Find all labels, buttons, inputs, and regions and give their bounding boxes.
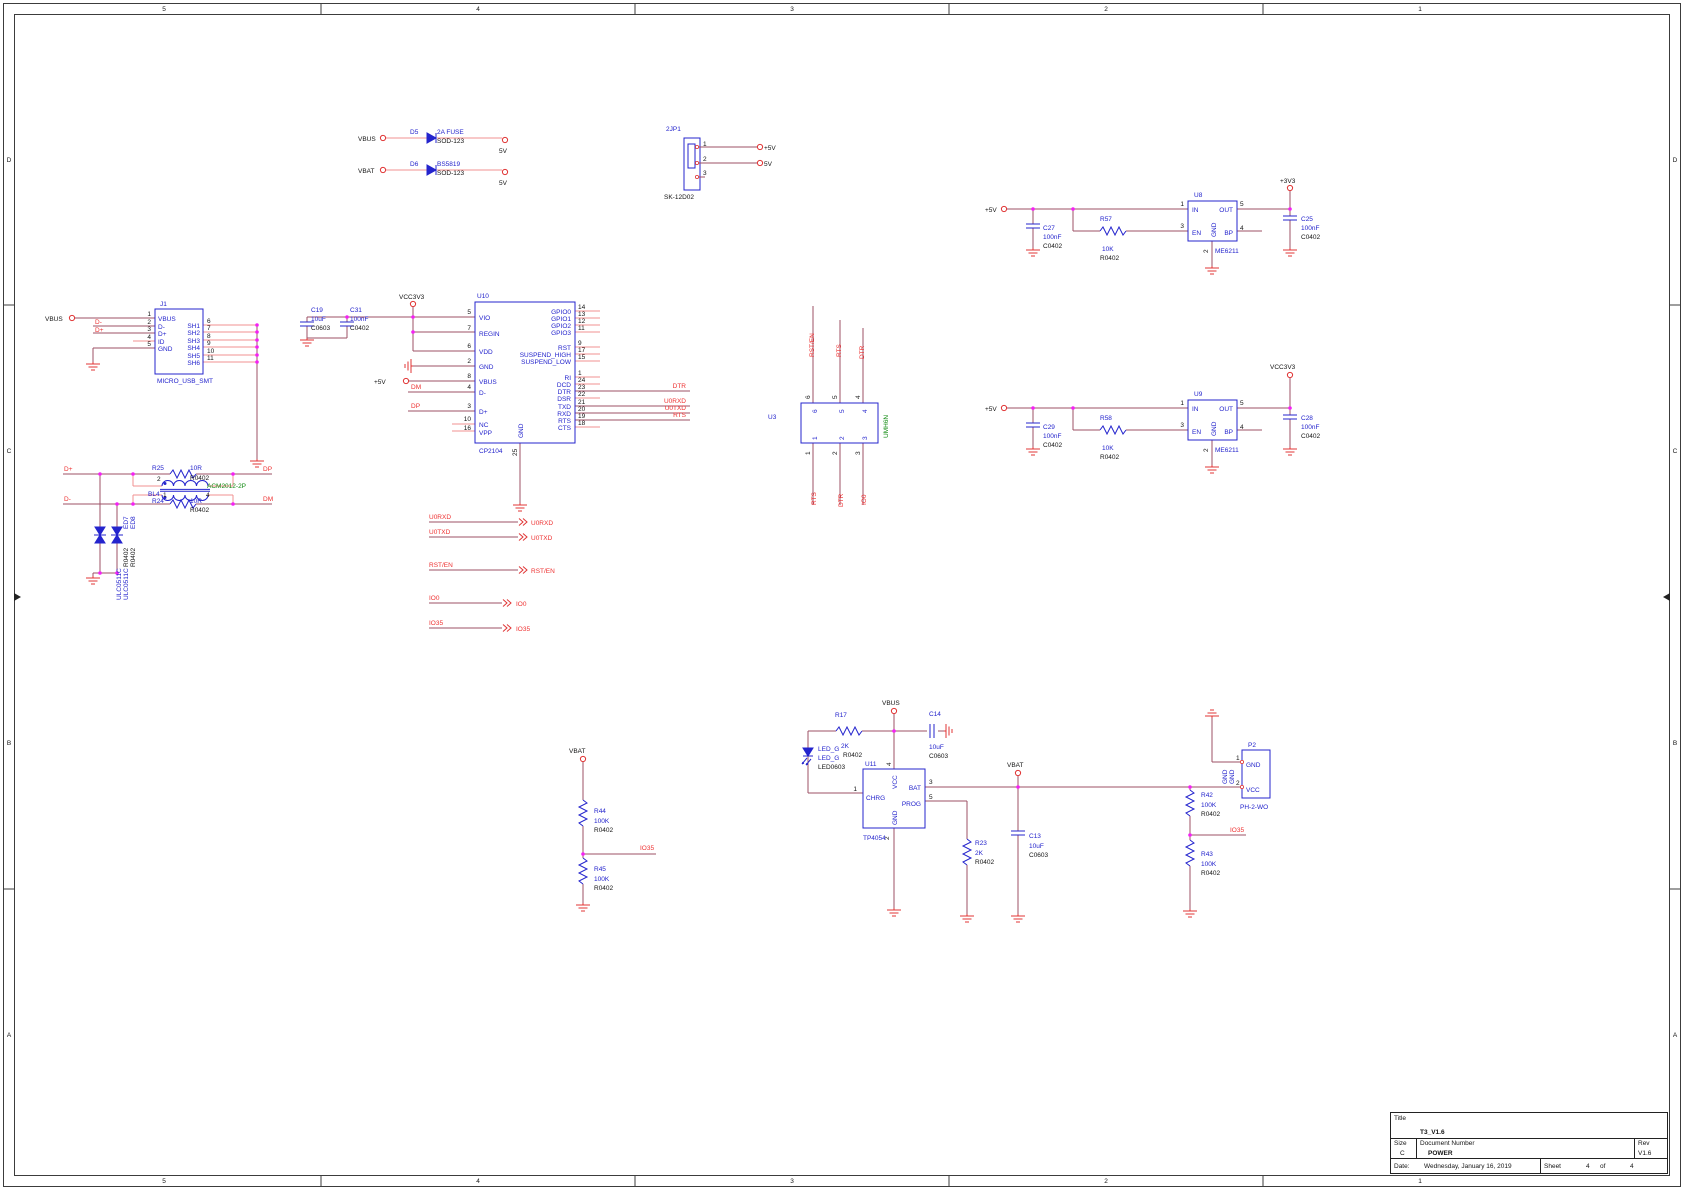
usb_filter-part-label: R25 [152, 465, 164, 472]
usb_filter-part-label: 10R [190, 465, 202, 472]
usb_bridge_u10-part-label: RTS [558, 418, 572, 425]
regulator_u8-part-label: GND [1211, 222, 1218, 237]
usb_bridge_u10-text-label: 22 [578, 391, 586, 398]
frame-text-label: A [1673, 1032, 1678, 1039]
charger-part-label: LED_G [818, 746, 839, 753]
input_protection-text-label: VBUS [358, 136, 376, 143]
usb_bridge_u10-part-label: D- [479, 390, 486, 397]
strap_u3-text-label: 3 [855, 451, 862, 455]
usb_connector-net-label: D+ [95, 327, 104, 334]
regulator_u9-part-label: ME6211 [1215, 447, 1239, 454]
charger-text-label: R0402 [1201, 811, 1221, 818]
signal_stubs-net-label: U0TXD [531, 535, 553, 542]
left-center-arrow-icon [14, 593, 21, 601]
regulator_u9-part-label: U9 [1194, 391, 1203, 398]
charger-text-label: LED0603 [818, 764, 845, 771]
charger-text-label: 3 [929, 779, 933, 786]
usb_bridge_u10-text-label: 12 [578, 318, 586, 325]
charger-part-label: GND [1246, 762, 1261, 769]
regulator_u8-part-label: C25 [1301, 216, 1313, 223]
charger-text-label: R0402 [975, 859, 995, 866]
usb_connector-part-label: SH6 [187, 360, 200, 367]
usb_bridge_u10-part-label: RST [558, 345, 571, 352]
regulator_u8-part-label: C27 [1043, 225, 1055, 232]
usb_bridge_u10-text-label: 23 [578, 384, 586, 391]
usb_bridge_u10-text-label: 5 [467, 309, 471, 316]
usb_bridge_u10-part-label: D+ [479, 409, 488, 416]
regulator_u8-text-label: C0402 [1043, 243, 1063, 250]
input_protection-text-label: SOD-123 [437, 138, 464, 145]
usb_connector-part-label: J1 [160, 301, 167, 308]
regulator_u8-part-label: OUT [1219, 207, 1233, 214]
strap_u3-text-label: 2 [832, 451, 839, 455]
regulator_u9-text-label: C0402 [1043, 442, 1063, 449]
usb_bridge_u10-part-label: REGIN [479, 331, 500, 338]
sheet-label: Sheet [1544, 1163, 1561, 1170]
usb_filter-part-label: ED8 [130, 516, 137, 529]
frame-text-label: 3 [790, 6, 794, 13]
charger-part-label: TP4054 [863, 835, 886, 842]
jumper-text-label: 3 [703, 170, 707, 177]
signal_stubs-net-label: U0RXD [429, 514, 451, 521]
usb_bridge_u10-net-label: DTR [673, 383, 687, 390]
strap_u3-net-label: IO0 [861, 494, 868, 505]
input_protection-part-label: D5 [410, 129, 419, 136]
signal_stubs-net-label: RST/EN [429, 562, 453, 569]
strap_u3-net-label: RTS [811, 491, 818, 505]
frame-text-label: 5 [162, 6, 166, 13]
regulator_u9-part-label: C29 [1043, 424, 1055, 431]
sheet-number: 4 [1586, 1163, 1590, 1170]
strap_u3-text-label: 6 [805, 395, 812, 399]
usb_connector-part-label: SH5 [187, 353, 200, 360]
jumper-text-label: 5V [764, 161, 773, 168]
charger-part-label: R23 [975, 840, 987, 847]
regulator_u9-text-label: 1 [1180, 400, 1184, 407]
usb_bridge_u10-part-label: VBUS [479, 379, 497, 386]
regulator_u9-part-label: 10K [1102, 445, 1114, 452]
strap_u3-text-label: 1 [805, 451, 812, 455]
strap_u3-net-label: DTR [859, 345, 866, 359]
usb_connector-text-label: 6 [207, 318, 211, 325]
battery_divider-net-label: IO35 [640, 845, 654, 852]
charger-text-label: C0603 [929, 753, 949, 760]
usb_bridge_u10-text-label: 18 [578, 420, 586, 427]
regulator_u9-text-label: R0402 [1100, 454, 1120, 461]
usb_connector-part-label: SH4 [187, 345, 200, 352]
regulator_u9-part-label: C28 [1301, 415, 1313, 422]
input_protection-part-label: 2A FUSE [437, 129, 464, 136]
component-jumper-2jp1 [684, 138, 763, 190]
regulator_u9-text-label: VCC3V3 [1270, 364, 1296, 371]
strap_u3-text-label: 5 [832, 395, 839, 399]
input_protection-part-label: D6 [410, 161, 419, 168]
battery_divider-part-label: 100K [594, 818, 610, 825]
regulator_u9-part-label: R58 [1100, 415, 1112, 422]
usb_connector-part-label: D+ [158, 331, 167, 338]
usb_bridge_u10-part-label: 100nF [350, 316, 368, 323]
frame-text-label: A [7, 1032, 12, 1039]
usb_connector-part-label: SH2 [187, 330, 200, 337]
charger-part-label: 10uF [1029, 843, 1044, 850]
frame-text-label: 2 [1104, 6, 1108, 13]
usb_bridge_u10-part-label: GPIO0 [551, 309, 571, 316]
frame-text-label: D [1673, 157, 1678, 164]
usb_bridge_u10-text-label: 20 [578, 406, 586, 413]
sheet-of-label: of [1600, 1163, 1606, 1170]
usb_connector-text-label: VBUS [45, 316, 63, 323]
regulator_u8-text-label: 5 [1240, 201, 1244, 208]
usb_bridge_u10-net-label: DM [411, 384, 421, 391]
regulator_u9-part-label: GND [1211, 421, 1218, 436]
usb_bridge_u10-part-label: VPP [479, 430, 492, 437]
charger-part-label: 100K [1201, 861, 1217, 868]
charger-text-label: 5 [929, 794, 933, 801]
strap_u3-part-label: 1 [812, 436, 819, 440]
charger-part-label: PROG [902, 801, 921, 808]
usb_bridge_u10-part-label: C19 [311, 307, 323, 314]
usb_bridge_u10-text-label: C0402 [350, 325, 370, 332]
charger-part-label: VCC [892, 775, 899, 789]
date-value: Wednesday, January 16, 2019 [1424, 1163, 1512, 1170]
regulator_u8-part-label: 100nF [1043, 234, 1061, 241]
strap_u3-part-value-label: UMH6N [883, 415, 890, 438]
usb_bridge_u10-text-label: 9 [578, 340, 582, 347]
regulator_u8-part-label: U8 [1194, 192, 1203, 199]
charger-part-label: C14 [929, 711, 941, 718]
usb_bridge_u10-net-label: RTS [673, 412, 687, 419]
title-label: Title [1394, 1115, 1406, 1122]
usb_bridge_u10-text-label: 21 [578, 399, 586, 406]
usb_bridge_u10-text-label: VCC3V3 [399, 294, 425, 301]
charger-text-label: R0402 [843, 752, 863, 759]
usb_bridge_u10-text-label: 16 [464, 425, 472, 432]
charger-part-label: R17 [835, 712, 847, 719]
frame-text-label: 3 [790, 1178, 794, 1185]
component-battery-divider [576, 756, 656, 911]
charger-part-label: GND [1222, 769, 1229, 784]
usb_connector-text-label: 8 [207, 333, 211, 340]
regulator_u9-part-label: EN [1192, 429, 1201, 436]
usb_connector-text-label: 1 [147, 311, 151, 318]
frame-text-label: 1 [1418, 1178, 1422, 1185]
regulator_u8-part-label: BP [1224, 230, 1233, 237]
charger-part-label: 100K [1201, 802, 1217, 809]
regulator_u8-part-label: 100nF [1301, 225, 1319, 232]
jumper-part-label: 2JP1 [666, 126, 681, 133]
right-center-arrow-icon [1663, 593, 1670, 601]
usb_bridge_u10-part-label: GND [518, 423, 525, 438]
jumper-text-label: +5V [764, 145, 776, 152]
usb_bridge_u10-part-label: C31 [350, 307, 362, 314]
rev-value: V1.6 [1638, 1150, 1652, 1157]
charger-part-label: R42 [1201, 792, 1213, 799]
signal_stubs-net-label: IO0 [516, 601, 527, 608]
usb_bridge_u10-text-label: 8 [467, 373, 471, 380]
usb_filter-text-label: R0402 [123, 547, 130, 567]
charger-part-label: P2 [1248, 742, 1256, 749]
usb_filter-net-label: DM [263, 496, 273, 503]
usb_connector-part-label: VBUS [158, 316, 176, 323]
usb_bridge_u10-text-label: 11 [578, 325, 585, 332]
strap_u3-part-label: 2 [839, 436, 846, 440]
date-label: Date: [1394, 1163, 1410, 1170]
usb_connector-part-label: GND [158, 346, 173, 353]
jumper-text-label: 2 [703, 156, 707, 163]
usb_bridge_u10-part-label: DCD [557, 382, 571, 389]
charger-text-label: VBAT [1007, 762, 1024, 769]
frame-text-label: 2 [1104, 1178, 1108, 1185]
charger-text-label: 1 [1236, 755, 1240, 762]
usb_bridge_u10-part-label: VDD [479, 349, 493, 356]
charger-part-label: 2K [975, 850, 984, 857]
usb_filter-text-label: R0402 [130, 547, 137, 567]
usb_bridge_u10-text-label: 19 [578, 413, 586, 420]
signal_stubs-net-label: RST/EN [531, 568, 555, 575]
regulator_u8-text-label: +5V [985, 207, 997, 214]
frame-text-label: C [1673, 448, 1678, 455]
usb_filter-net-label: DP [263, 466, 272, 473]
usb_bridge_u10-text-label: 15 [578, 354, 586, 361]
frame-text-label: 4 [476, 6, 480, 13]
charger-part-label: U11 [865, 761, 877, 768]
strap_u3-part-label: 6 [812, 409, 819, 413]
usb_connector-text-label: 11 [207, 355, 214, 362]
battery_divider-part-label: R44 [594, 808, 606, 815]
battery_divider-text-label: VBAT [569, 748, 586, 755]
usb_bridge_u10-part-label: GPIO1 [551, 316, 571, 323]
charger-text-label: R0402 [1201, 870, 1221, 877]
usb_connector-part-label: SH3 [187, 338, 200, 345]
usb_bridge_u10-net-label: U0RXD [664, 398, 686, 405]
usb_bridge_u10-text-label: +5V [374, 379, 386, 386]
title-block: Title T3_V1.6 Size C Document Number POW… [1391, 1113, 1668, 1174]
regulator_u8-part-label: 10K [1102, 246, 1114, 253]
usb_filter-part-label: ULC0511C [123, 568, 130, 600]
usb_filter-part-label: ULC0511C [116, 568, 123, 600]
frame-text-label: 1 [1418, 6, 1422, 13]
regulator_u8-text-label: R0402 [1100, 255, 1120, 262]
battery_divider-part-label: R45 [594, 866, 606, 873]
regulator_u9-text-label: 2 [1203, 448, 1210, 452]
input_protection-text-label: 5V [499, 180, 508, 187]
usb_bridge_u10-text-label: 25 [512, 448, 519, 456]
usb_connector-part-label: D- [158, 324, 165, 331]
input_protection-text-label: VBAT [358, 168, 375, 175]
charger-part-label: GND [1229, 769, 1236, 784]
usb_bridge_u10-part-label: RI [565, 375, 572, 382]
regulator_u8-part-label: R57 [1100, 216, 1112, 223]
usb_bridge_u10-text-label: 13 [578, 311, 586, 318]
charger-part-label: 2K [841, 743, 850, 750]
usb_connector-text-label: 5 [147, 341, 151, 348]
usb_filter-text-label: R0402 [190, 507, 210, 514]
usb_bridge_u10-part-label: CP2104 [479, 448, 503, 455]
usb_bridge_u10-text-label: 3 [467, 403, 471, 410]
usb_connector-part-label: ID [158, 339, 165, 346]
frame-text-label: C [7, 448, 12, 455]
usb_bridge_u10-part-label: RXD [557, 411, 571, 418]
usb_bridge_u10-text-label: 2 [467, 358, 471, 365]
charger-part-label: LED_G [818, 755, 839, 762]
usb_connector-part-label: MICRO_USB_SMT [157, 378, 213, 385]
usb_connector-text-label: 9 [207, 340, 211, 347]
usb_bridge_u10-text-label: 17 [578, 347, 586, 354]
signal_stubs-net-label: IO35 [516, 626, 530, 633]
charger-part-label: CHRG [866, 795, 885, 802]
frame-text-label: B [7, 740, 11, 747]
rev-label: Rev [1638, 1140, 1650, 1147]
usb_bridge_u10-text-label: 24 [578, 377, 586, 384]
jumper-text-label: 1 [703, 141, 707, 148]
charger-text-label: C0603 [1029, 852, 1049, 859]
usb_filter-net-label: D+ [64, 466, 73, 473]
usb_bridge_u10-part-label: GND [479, 364, 494, 371]
charger-part-label: C13 [1029, 833, 1041, 840]
usb_bridge_u10-part-label: TXD [558, 404, 571, 411]
jumper-text-label: SK-12D02 [664, 194, 694, 201]
regulator_u9-text-label: 4 [1240, 424, 1244, 431]
usb_filter-part-label: 10R [190, 498, 202, 505]
usb_bridge_u10-part-label: DSR [557, 396, 571, 403]
schematic-canvas: Title T3_V1.6 Size C Document Number POW… [0, 0, 1684, 1190]
strap_u3-part-label: 3 [862, 436, 869, 440]
size-value: C [1400, 1150, 1405, 1157]
charger-text-label: 4 [886, 762, 893, 766]
regulator_u9-part-label: BP [1224, 429, 1233, 436]
charger-net-label: IO35 [1230, 827, 1244, 834]
regulator_u8-part-label: EN [1192, 230, 1201, 237]
regulator_u8-text-label: +3V3 [1280, 178, 1296, 185]
frame-text-label: B [1673, 740, 1677, 747]
regulator_u9-part-label: 100nF [1043, 433, 1061, 440]
usb_connector-part-label: SH1 [187, 323, 200, 330]
sheet-border [4, 4, 1681, 1187]
usb_connector-text-label: 2 [147, 319, 151, 326]
strap_u3-text-label: 4 [855, 395, 862, 399]
frame-text-label: 5 [162, 1178, 166, 1185]
usb_filter-part-label: R24 [152, 498, 164, 505]
usb_connector-text-label: 3 [147, 326, 151, 333]
usb_bridge_u10-part-label: SUSPEND_LOW [521, 359, 572, 366]
usb_filter-text-label: 2 [157, 476, 161, 483]
component-regulator-u9 [1001, 372, 1297, 473]
charger-text-label: 1 [853, 786, 857, 793]
regulator_u8-text-label: C0402 [1301, 234, 1321, 241]
usb_filter-text-label: 4 [206, 492, 210, 499]
usb_bridge_u10-part-label: CTS [558, 425, 572, 432]
regulator_u8-text-label: 1 [1180, 201, 1184, 208]
usb_bridge_u10-part-label: VIO [479, 315, 490, 322]
input_protection-text-label: 5V [499, 148, 508, 155]
usb_connector-text-label: 10 [207, 348, 215, 355]
usb_bridge_u10-net-label: DP [411, 403, 420, 410]
strap_u3-part-label: 5 [839, 409, 846, 413]
strap_u3-part-label: U3 [768, 414, 777, 421]
usb_filter-net-label: D- [64, 496, 71, 503]
input_protection-part-label: BS5819 [437, 161, 461, 168]
charger-part-label: VCC [1246, 787, 1260, 794]
usb_bridge_u10-part-label: NC [479, 422, 489, 429]
regulator_u8-text-label: 3 [1180, 223, 1184, 230]
usb_bridge_u10-text-label: 14 [578, 304, 586, 311]
charger-part-label: BAT [909, 785, 921, 792]
usb_bridge_u10-text-label: 7 [467, 325, 471, 332]
regulator_u9-text-label: +5V [985, 406, 997, 413]
usb_filter-part-value-label: ACM2012-2P [207, 483, 246, 490]
signal_stubs-net-label: U0TXD [429, 529, 451, 536]
usb_filter-text-label: R0402 [190, 475, 210, 482]
battery_divider-text-label: R0402 [594, 885, 614, 892]
regulator_u9-text-label: 3 [1180, 422, 1184, 429]
battery_divider-part-label: 100K [594, 876, 610, 883]
size-label: Size [1394, 1140, 1407, 1147]
usb_connector-text-label: 7 [207, 325, 211, 332]
battery_divider-text-label: R0402 [594, 827, 614, 834]
usb_bridge_u10-text-label: C0603 [311, 325, 331, 332]
usb_bridge_u10-part-label: SUSPEND_HIGH [520, 352, 572, 359]
usb_filter-part-label: ED7 [123, 516, 130, 529]
regulator_u8-text-label: 4 [1240, 225, 1244, 232]
regulator_u9-text-label: C0402 [1301, 433, 1321, 440]
usb_bridge_u10-part-label: GPIO2 [551, 323, 571, 330]
regulator_u8-part-label: IN [1192, 207, 1199, 214]
usb_bridge_u10-part-label: GPIO3 [551, 330, 571, 337]
usb_bridge_u10-part-label: DTR [558, 389, 572, 396]
regulator_u9-part-label: OUT [1219, 406, 1233, 413]
usb_bridge_u10-net-label: U0TXD [665, 405, 687, 412]
usb_connector-text-label: 4 [147, 334, 151, 341]
signal_stubs-net-label: IO0 [429, 595, 440, 602]
usb_bridge_u10-part-label: U10 [477, 293, 489, 300]
charger-text-label: VBUS [882, 700, 900, 707]
strap_u3-net-label: RTS [836, 343, 843, 357]
component-charger-u11 [802, 708, 1270, 922]
charger-part-label: 10uF [929, 744, 944, 751]
usb_bridge_u10-part-label: 10uF [311, 316, 326, 323]
frame-text-label: D [7, 157, 12, 164]
regulator_u8-text-label: 2 [1203, 249, 1210, 253]
strap_u3-net-label: RST/EN [809, 333, 816, 357]
usb_bridge_u10-text-label: 6 [467, 343, 471, 350]
charger-part-label: GND [892, 810, 899, 825]
regulator_u9-part-label: 100nF [1301, 424, 1319, 431]
frame-text-label: 4 [476, 1178, 480, 1185]
regulator_u9-text-label: 5 [1240, 400, 1244, 407]
usb_bridge_u10-text-label: 1 [578, 370, 582, 377]
regulator_u8-part-label: ME6211 [1215, 248, 1239, 255]
usb_bridge_u10-text-label: 10 [464, 416, 472, 423]
strap_u3-net-label: DTR [838, 493, 845, 507]
sheet-title: T3_V1.6 [1420, 1129, 1445, 1136]
usb_bridge_u10-text-label: 4 [467, 384, 471, 391]
strap_u3-part-label: 4 [862, 409, 869, 413]
docnum-label: Document Number [1420, 1140, 1475, 1147]
charger-part-label: PH-2-WO [1240, 804, 1268, 811]
regulator_u9-part-label: IN [1192, 406, 1199, 413]
charger-part-label: R43 [1201, 851, 1213, 858]
usb_filter-part-label: BL4 [148, 491, 160, 498]
schematic-sheet: Title T3_V1.6 Size C Document Number POW… [0, 0, 1684, 1190]
input_protection-text-label: SOD-123 [437, 170, 464, 177]
signal_stubs-net-label: U0RXD [531, 520, 553, 527]
sheet-total: 4 [1630, 1163, 1634, 1170]
usb_connector-net-label: D- [95, 319, 102, 326]
signal_stubs-net-label: IO35 [429, 620, 443, 627]
docnum-value: POWER [1428, 1150, 1453, 1157]
charger-text-label: 2 [1236, 780, 1240, 787]
